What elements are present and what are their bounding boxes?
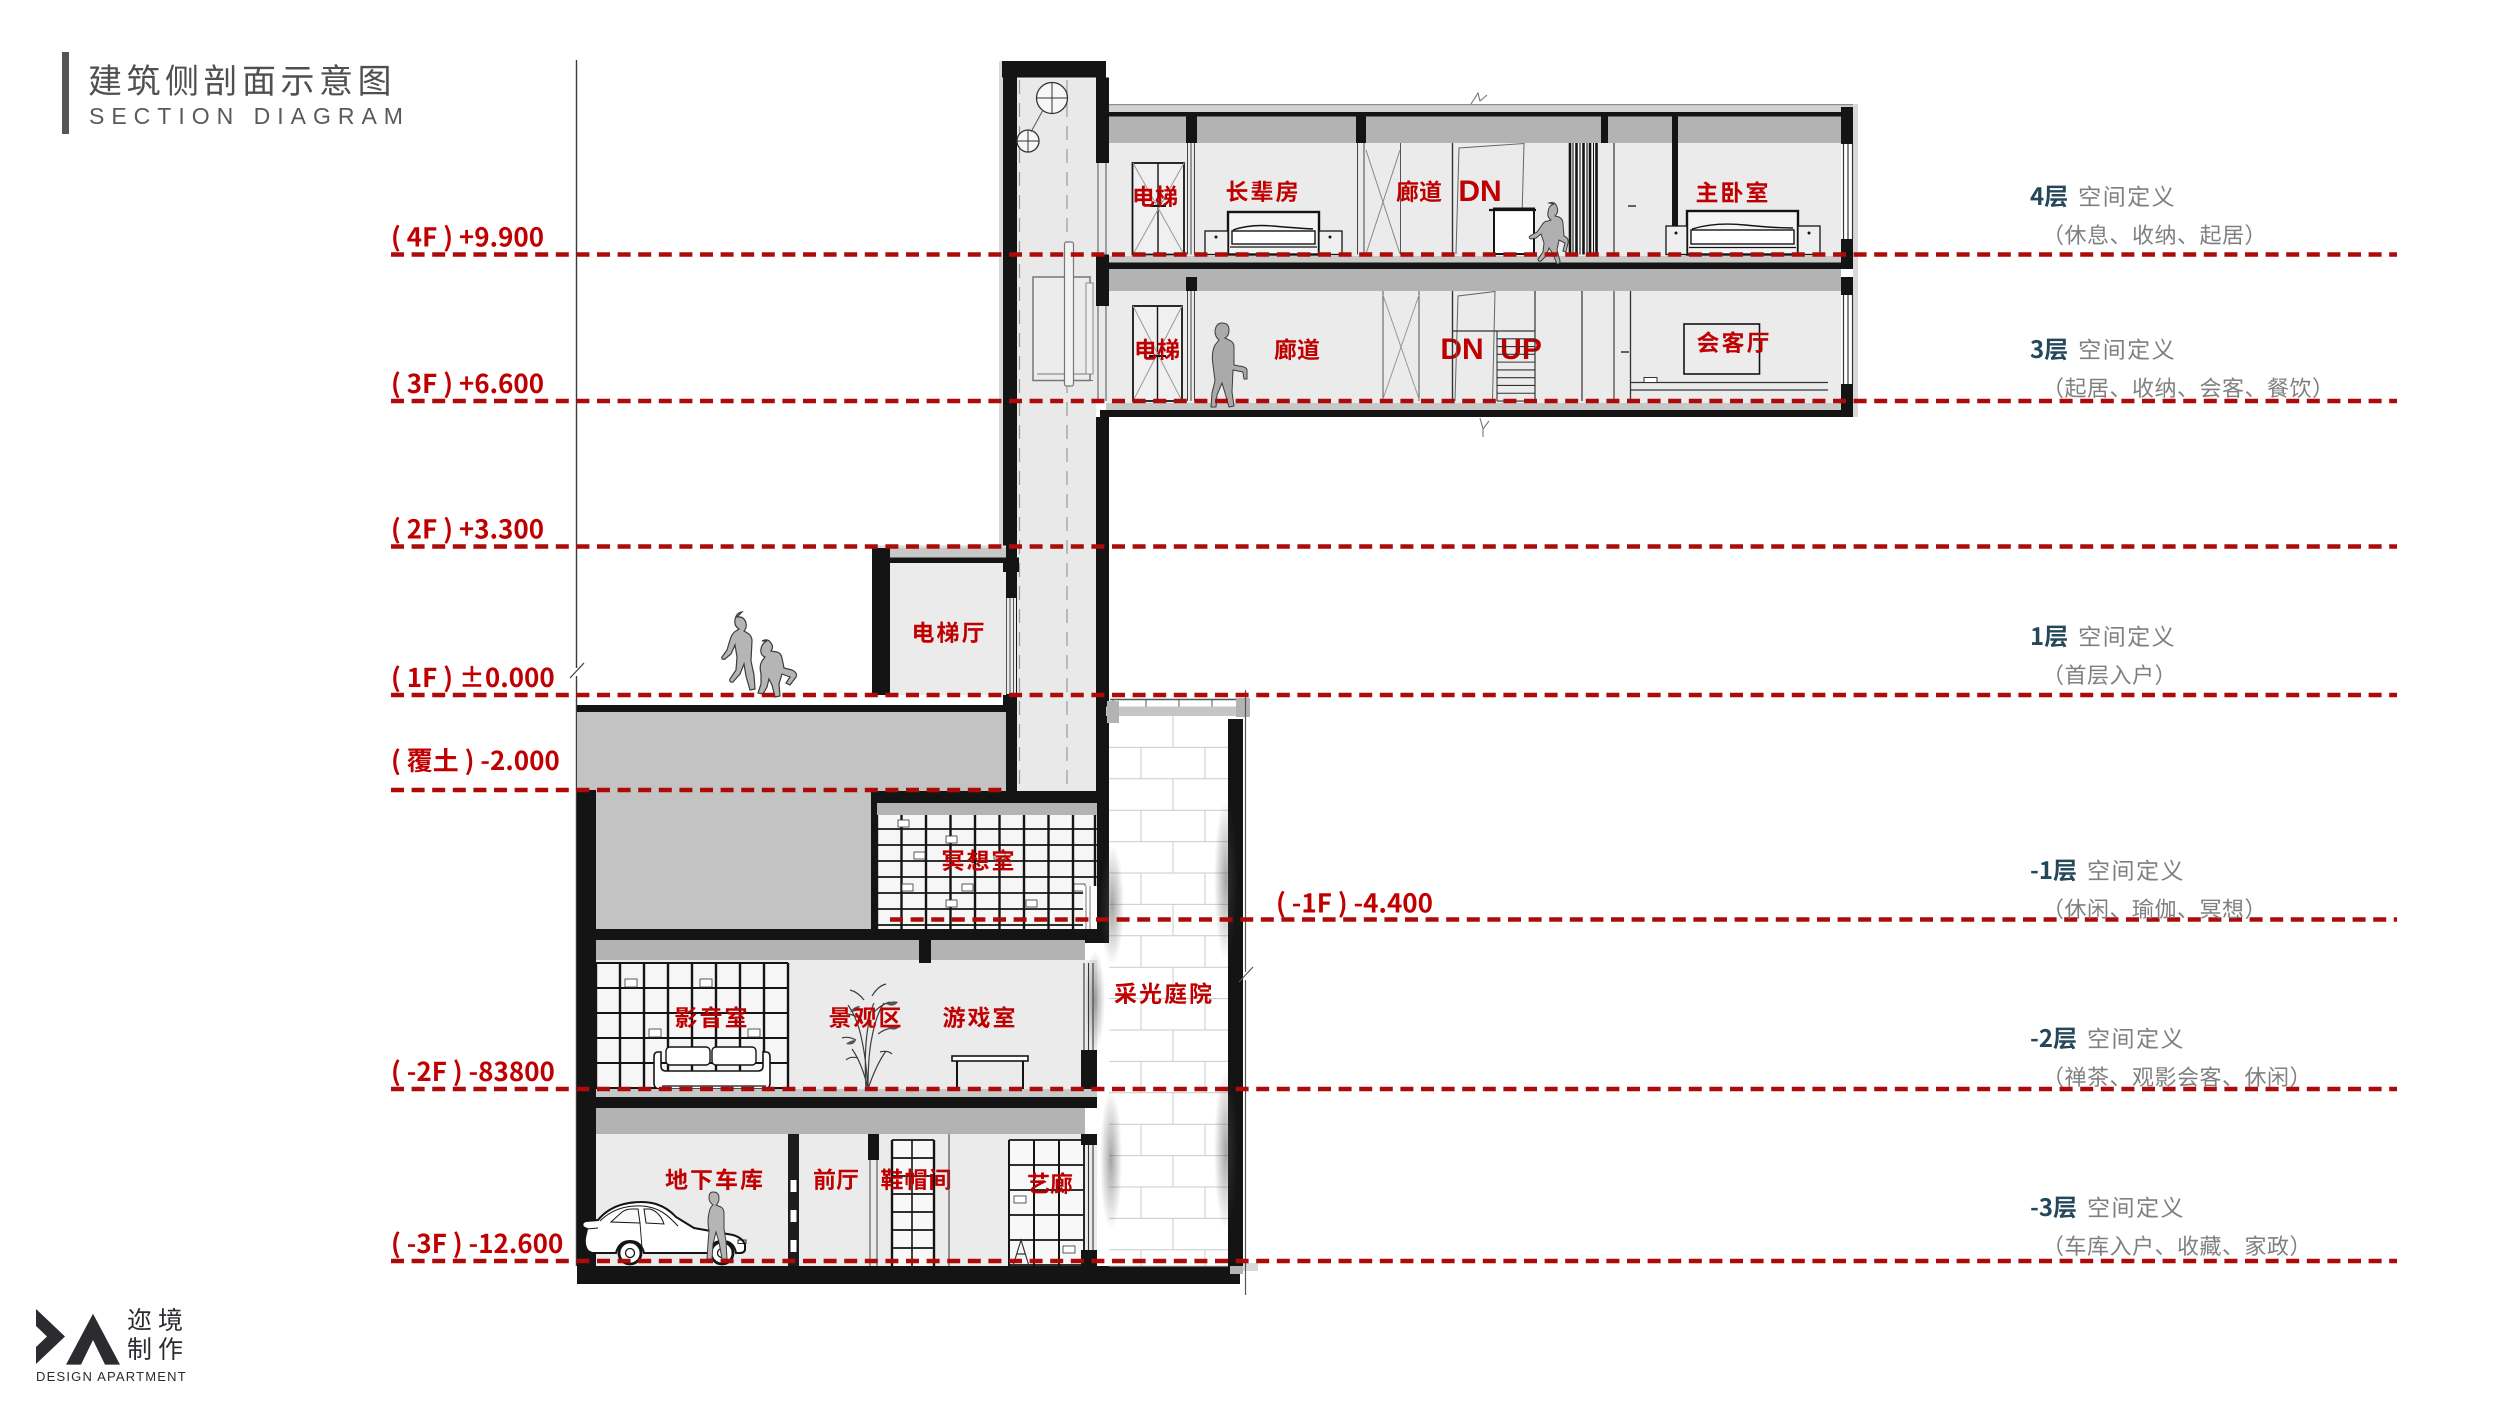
svg-text:DN: DN bbox=[1458, 175, 1501, 208]
svg-text:DESIGN APARTMENT: DESIGN APARTMENT bbox=[36, 1369, 187, 1384]
svg-text:SECTION DIAGRAM: SECTION DIAGRAM bbox=[89, 103, 410, 129]
svg-text:DN: DN bbox=[1440, 333, 1483, 366]
